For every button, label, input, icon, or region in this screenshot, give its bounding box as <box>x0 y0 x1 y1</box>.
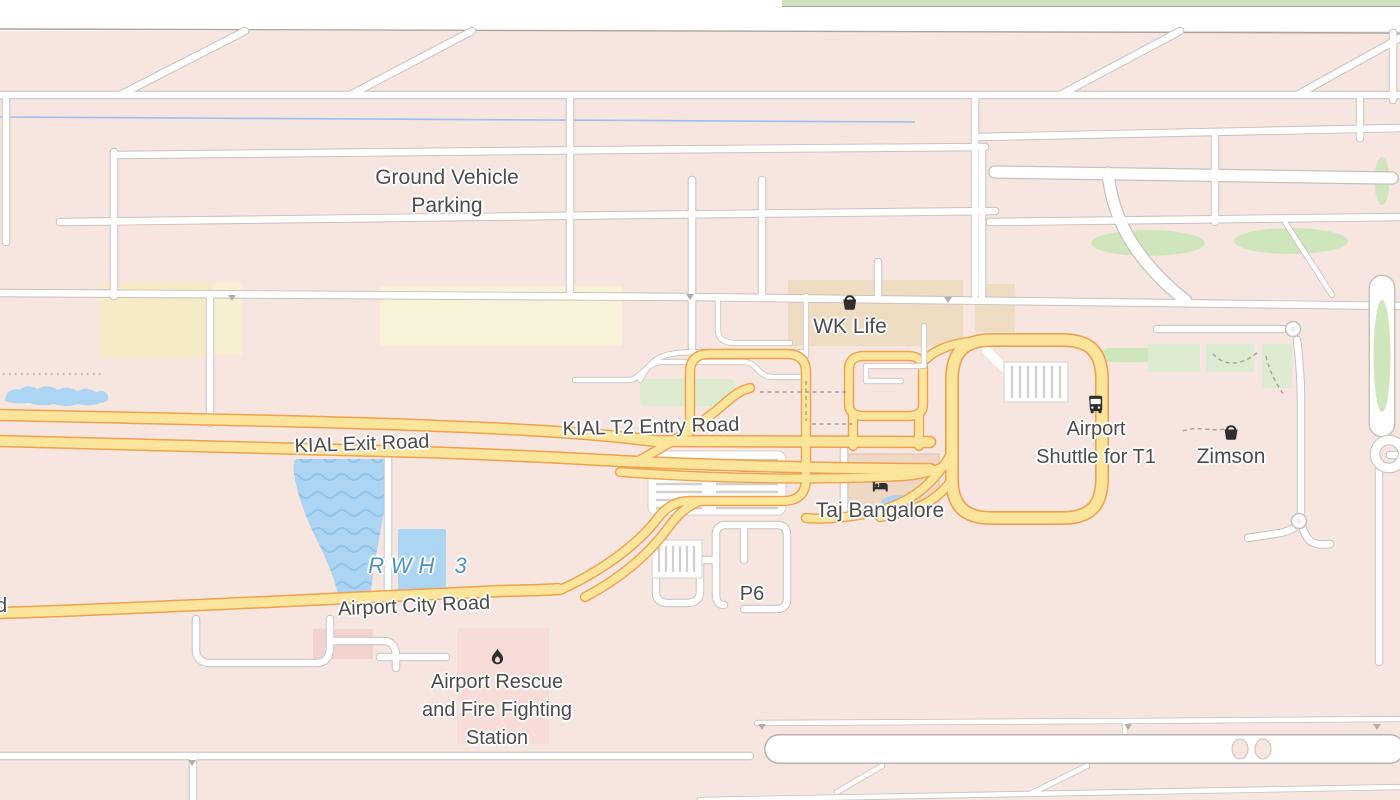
label-p6: P6 <box>740 580 764 608</box>
poi-label: Taj Bangalore <box>816 497 944 525</box>
road-label-kial-exit: KIAL Exit Road <box>294 428 430 461</box>
poi-fire-station[interactable]: Airport Rescue and Fire Fighting Station <box>422 647 572 752</box>
bus-icon <box>1085 394 1106 415</box>
poi-wk-life[interactable]: WK Life <box>813 292 887 341</box>
fire-flame-icon <box>486 647 507 668</box>
shopping-basket-icon <box>840 292 861 313</box>
poi-label: Zimson <box>1197 443 1266 471</box>
road-label-clipped: d <box>0 592 7 620</box>
label-line: Parking <box>375 192 519 220</box>
map-tiles <box>0 0 1400 800</box>
poi-taj-bangalore[interactable]: Taj Bangalore <box>816 476 944 525</box>
poi-label: Airport Rescue and Fire Fighting Station <box>422 668 572 752</box>
hotel-bed-icon <box>869 476 890 497</box>
road-label-kial-t2-entry: KIAL T2 Entry Road <box>562 411 739 444</box>
poi-label: WK Life <box>813 313 887 341</box>
poi-airport-shuttle-t1[interactable]: Airport Shuttle for T1 <box>1036 394 1156 471</box>
water-label-rwh3: RWH 3 <box>368 552 474 580</box>
poi-zimson[interactable]: Zimson <box>1197 422 1266 471</box>
map-viewport[interactable]: Ground Vehicle Parking WK Life KIAL T2 E… <box>0 0 1400 800</box>
shopping-basket-icon <box>1220 422 1241 443</box>
poi-label: Airport Shuttle for T1 <box>1036 415 1156 471</box>
label-ground-vehicle-parking: Ground Vehicle Parking <box>375 164 519 220</box>
label-line: Ground Vehicle <box>375 164 519 192</box>
